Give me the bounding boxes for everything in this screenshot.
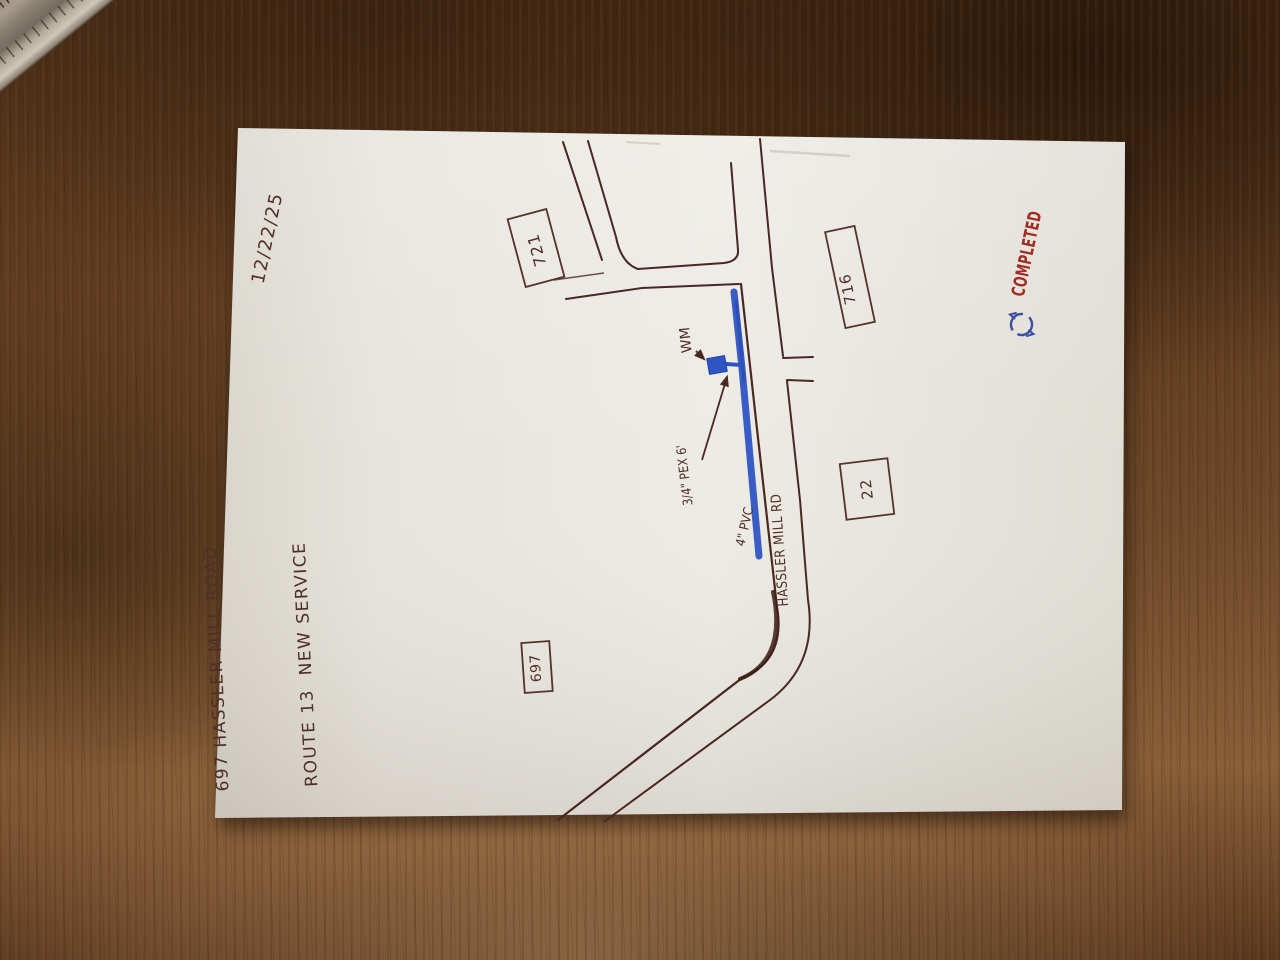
- parcel-label-697: 697: [528, 653, 545, 682]
- pex-service-stub-blue-line: [726, 364, 741, 365]
- water-meter-label: WM: [678, 326, 696, 353]
- sketch-title: 697 HASSLER MILL ROAD ROUTE 13 NEW SERVI…: [137, 537, 388, 796]
- wood-desk-background: 12/22/25 697 HASSLER MILL ROAD ROUTE 13 …: [0, 0, 1280, 960]
- junction-south-edge: [566, 284, 739, 299]
- driveway-line-south: [787, 380, 813, 381]
- wm-leader-arrow: [696, 351, 704, 359]
- pex-leader-arrow: [702, 377, 727, 460]
- main-road-east-edge-upper: [760, 139, 783, 356]
- nw-road-west-edge: [563, 142, 602, 260]
- driveway-line-north: [783, 357, 813, 358]
- pencil-smudge: [770, 151, 850, 156]
- parcel-label-22: 22: [858, 478, 877, 501]
- nw-road-east-edge-and-junction: [588, 141, 738, 269]
- title-line-1: 697 HASSLER MILL ROAD: [196, 545, 239, 793]
- ink-drawing-layer: [0, 0, 1280, 960]
- water-meter-square: [707, 356, 728, 375]
- circle-arrow-scribble-icon: [1007, 310, 1036, 339]
- pencil-smudge: [626, 142, 660, 144]
- main-road-west-edge: [558, 284, 779, 820]
- road-curve-heavy-ink: [740, 592, 776, 679]
- title-line-2: ROUTE 13 NEW SERVICE: [285, 540, 328, 788]
